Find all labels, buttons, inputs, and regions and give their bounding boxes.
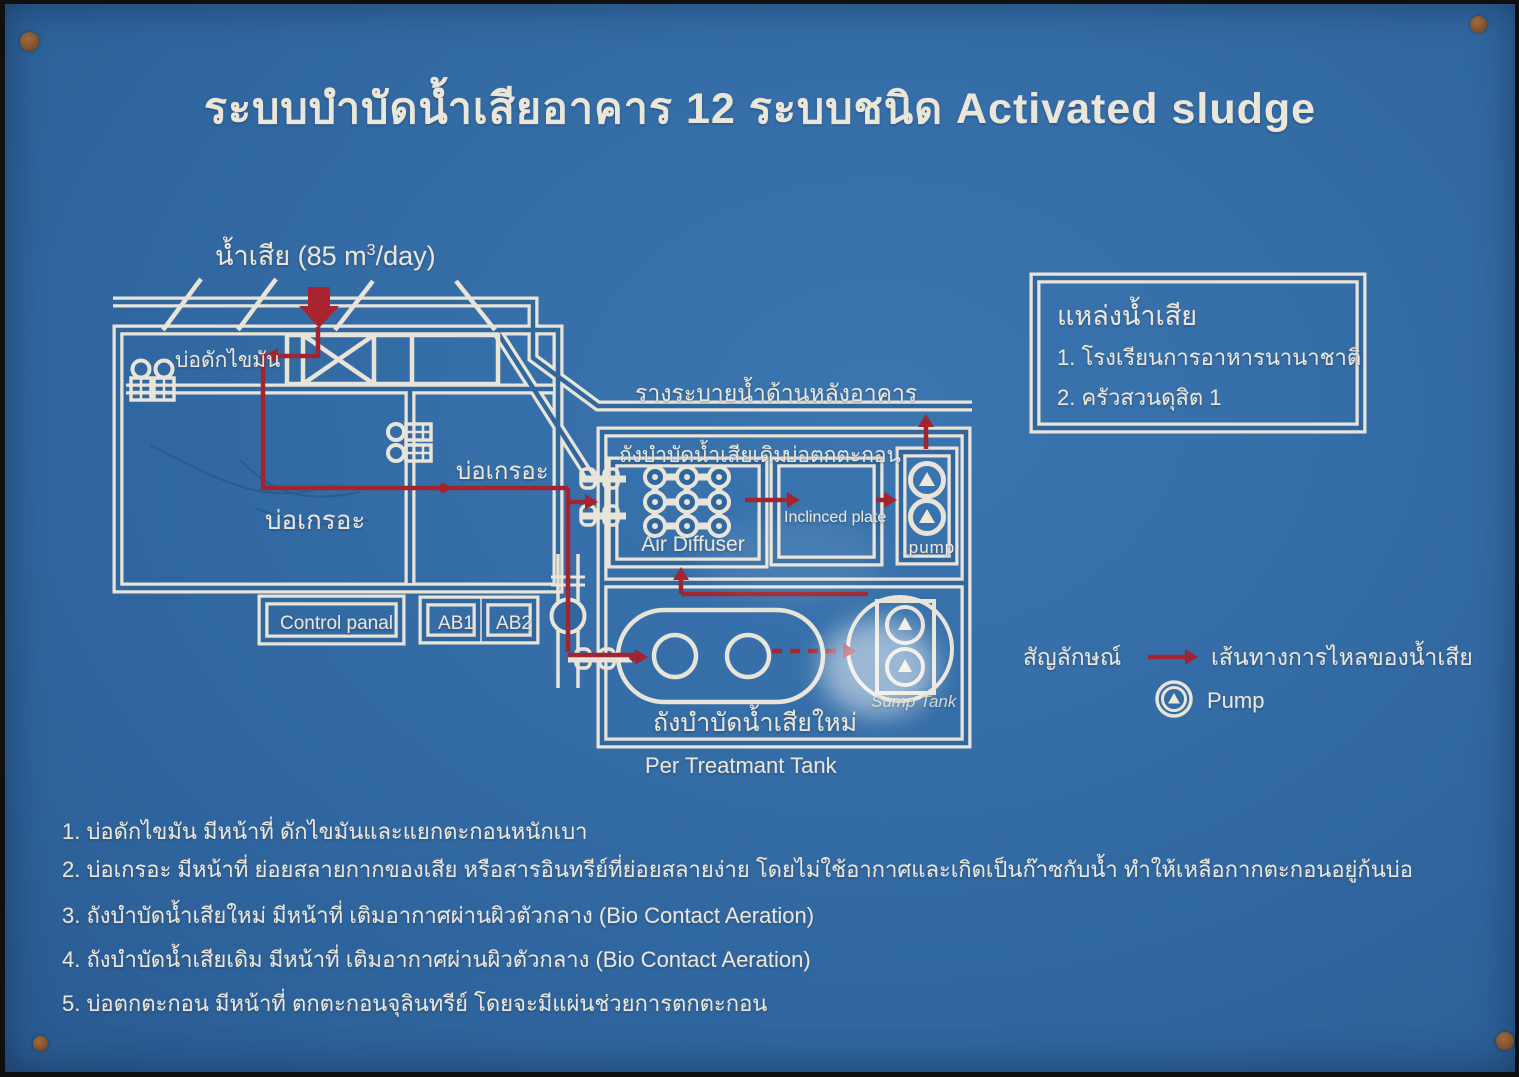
- septic-tank-right-label: บ่อเกรอะ: [456, 451, 549, 490]
- new-treatment-tank-shape: [618, 610, 823, 702]
- note-line: 5. บ่อตกตะกอน มีหน้าที่ ตกตะกอนจุลินทรีย…: [62, 986, 767, 1021]
- pre-treatment-tank-label: Per Treatmant Tank: [645, 753, 837, 779]
- source-box-item: 2. ครัวสวนดุสิต 1: [1057, 380, 1222, 415]
- legend-pump-label: Pump: [1207, 688, 1264, 714]
- note-line: 1. บ่อดักไขมัน มีหน้าที่ ดักไขมันและแยกต…: [62, 814, 588, 849]
- pump-column-icons: [911, 464, 944, 534]
- influent-suffix: /day): [376, 241, 436, 271]
- inclined-plate-label: Inclinced plate: [784, 509, 884, 527]
- glare-spot: [700, 520, 880, 600]
- control-panel-label: Control panal: [268, 604, 405, 644]
- ab1-label: AB1: [429, 605, 483, 643]
- influent-arrow: [299, 287, 339, 328]
- air-diffuser-label: Air Diffuser: [618, 533, 768, 557]
- new-treatment-tank-label: ถังบำบัดน้ำเสียใหม่: [653, 703, 857, 743]
- screw-icon: [33, 1036, 48, 1051]
- air-diffuser-grid: [644, 467, 730, 536]
- screw-icon: [1496, 1032, 1514, 1050]
- pump-triangle-icon: [1168, 693, 1180, 704]
- influent-prefix: น้ำเสีย (85 m: [215, 241, 367, 271]
- drain-channel-label: รางระบายน้ำด้านหลังอาคาร: [635, 376, 917, 412]
- screw-icon: [20, 32, 39, 51]
- sediment-tank-label: บ่อตกตะกอน: [784, 439, 901, 472]
- note-line: 4. ถังบำบัดน้ำเสียเดิม มีหน้าที่ เติมอาก…: [62, 942, 811, 977]
- sign-board: ระบบบำบัดน้ำเสียอาคาร 12 ระบบชนิด Activa…: [5, 4, 1515, 1072]
- septic-tank-left-label: บ่อเกรอะ: [265, 500, 365, 541]
- influent-superscript: 3: [367, 242, 376, 259]
- influent-label: น้ำเสีย (85 m3/day): [215, 234, 436, 277]
- pump-box-label: pump: [906, 538, 958, 558]
- ab2-label: AB2: [489, 605, 539, 643]
- flange-icon: [568, 649, 632, 668]
- photo-frame: ระบบบำบัดน้ำเสียอาคาร 12 ระบบชนิด Activa…: [0, 0, 1519, 1077]
- pipe-junction-dot: [629, 653, 637, 661]
- note-line: 3. ถังบำบัดน้ำเสียใหม่ มีหน้าที่ เติมอาก…: [62, 898, 814, 933]
- grease-trap-label: บ่อดักไขมัน: [175, 344, 280, 377]
- source-box-item: 1. โรงเรียนการอาหารนานาชาติ: [1057, 340, 1361, 375]
- pipe-junction-dot: [438, 483, 448, 493]
- flange-icon: [580, 506, 626, 525]
- sump-tank-label: Sump Tank: [871, 692, 956, 712]
- old-treatment-tank-label: ถังบำบัดน้ำเสียเดิม: [619, 439, 787, 472]
- pump-triangle-icon: [919, 472, 935, 486]
- page-title: ระบบบำบัดน้ำเสียอาคาร 12 ระบบชนิด Activa…: [5, 74, 1515, 142]
- legend-pump-icon: [1157, 682, 1191, 716]
- screw-icon: [1470, 16, 1487, 33]
- note-line: 2. บ่อเกรอะ มีหน้าที่ ย่อยสลายกากของเสีย…: [62, 852, 1413, 887]
- legend-flow-label: เส้นทางการไหลของน้ำเสีย: [1211, 640, 1473, 676]
- pump-triangle-icon: [919, 509, 935, 523]
- legend-symbol-label: สัญลักษณ์: [1023, 640, 1121, 676]
- source-box-title: แหล่งน้ำเสีย: [1057, 294, 1197, 337]
